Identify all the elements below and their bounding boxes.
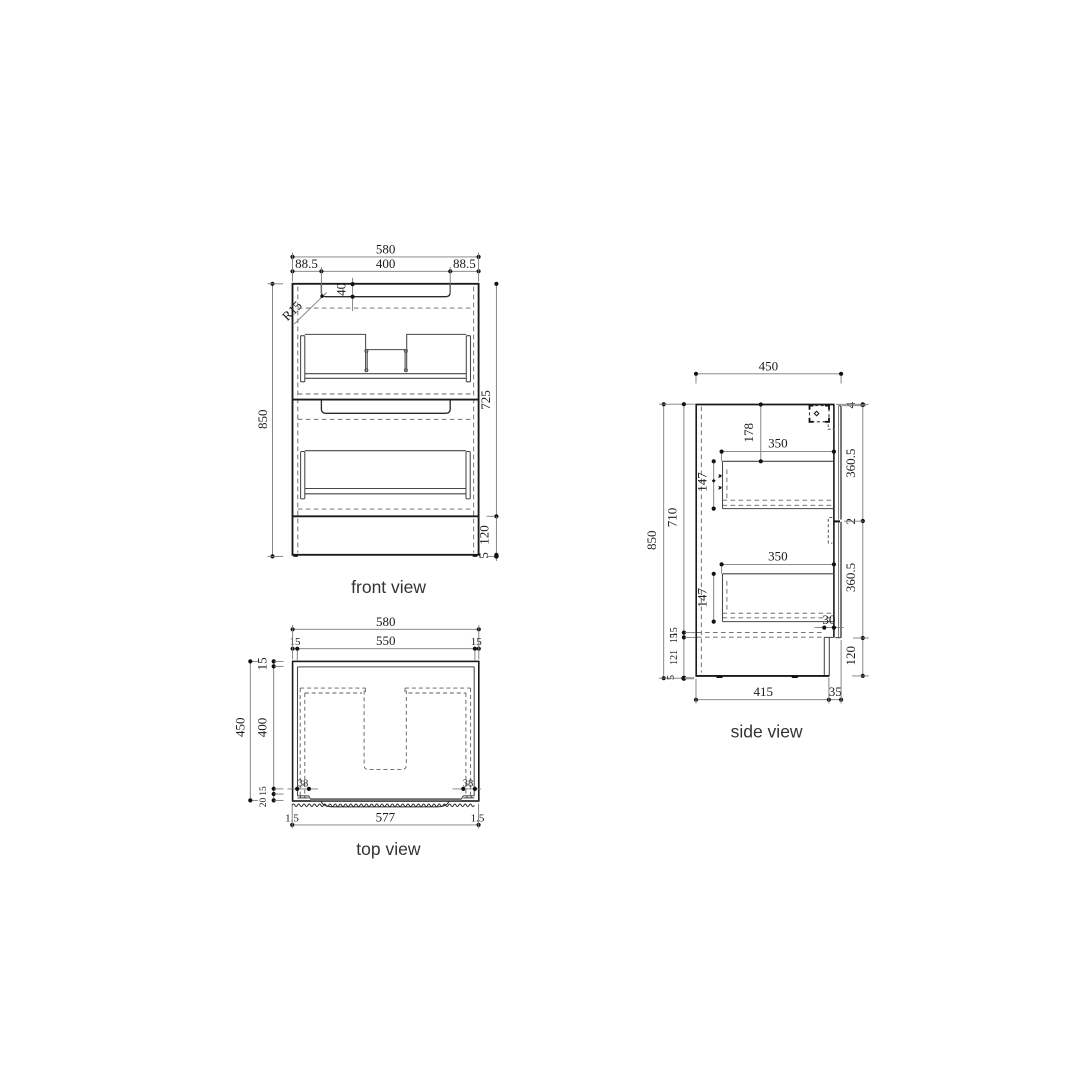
svg-text:121: 121 <box>669 650 680 665</box>
svg-text:88.5: 88.5 <box>453 256 476 271</box>
svg-text:400: 400 <box>254 718 269 738</box>
svg-text:5: 5 <box>476 552 491 559</box>
svg-text:15: 15 <box>290 636 302 648</box>
svg-text:120: 120 <box>843 646 858 666</box>
svg-text:350: 350 <box>768 549 788 564</box>
svg-text:725: 725 <box>478 390 493 410</box>
svg-text:400: 400 <box>376 256 396 271</box>
svg-text:450: 450 <box>759 358 779 373</box>
svg-text:40: 40 <box>334 283 349 296</box>
svg-text:580: 580 <box>376 241 396 256</box>
svg-text:side view: side view <box>731 721 803 741</box>
svg-text:415: 415 <box>754 684 774 699</box>
svg-text:580: 580 <box>376 614 396 629</box>
svg-text:88.5: 88.5 <box>295 256 318 271</box>
svg-text:850: 850 <box>255 410 270 430</box>
svg-text:front view: front view <box>351 577 426 597</box>
svg-text:top view: top view <box>356 839 421 859</box>
svg-text:147: 147 <box>695 587 710 607</box>
svg-text:35: 35 <box>829 684 842 699</box>
svg-text:450: 450 <box>232 718 247 738</box>
svg-text:20: 20 <box>259 798 269 808</box>
svg-text:4: 4 <box>843 401 858 408</box>
svg-text:710: 710 <box>665 508 680 528</box>
svg-text:550: 550 <box>376 633 396 648</box>
svg-text:30: 30 <box>822 612 835 627</box>
svg-text:178: 178 <box>741 423 756 443</box>
svg-text:360.5: 360.5 <box>843 563 858 592</box>
svg-text:15: 15 <box>471 636 483 648</box>
svg-text:350: 350 <box>768 436 788 451</box>
svg-text:15: 15 <box>254 657 269 670</box>
svg-text:360.5: 360.5 <box>843 449 858 478</box>
svg-text:15: 15 <box>259 786 269 796</box>
svg-text:147: 147 <box>695 472 710 492</box>
svg-text:15: 15 <box>669 633 680 643</box>
svg-text:577: 577 <box>376 809 396 824</box>
svg-text:38: 38 <box>463 778 474 789</box>
svg-text:850: 850 <box>644 531 659 551</box>
svg-text:38: 38 <box>298 778 309 789</box>
svg-text:120: 120 <box>477 525 492 545</box>
svg-text:1.5: 1.5 <box>471 812 485 824</box>
svg-text:5: 5 <box>666 675 677 680</box>
